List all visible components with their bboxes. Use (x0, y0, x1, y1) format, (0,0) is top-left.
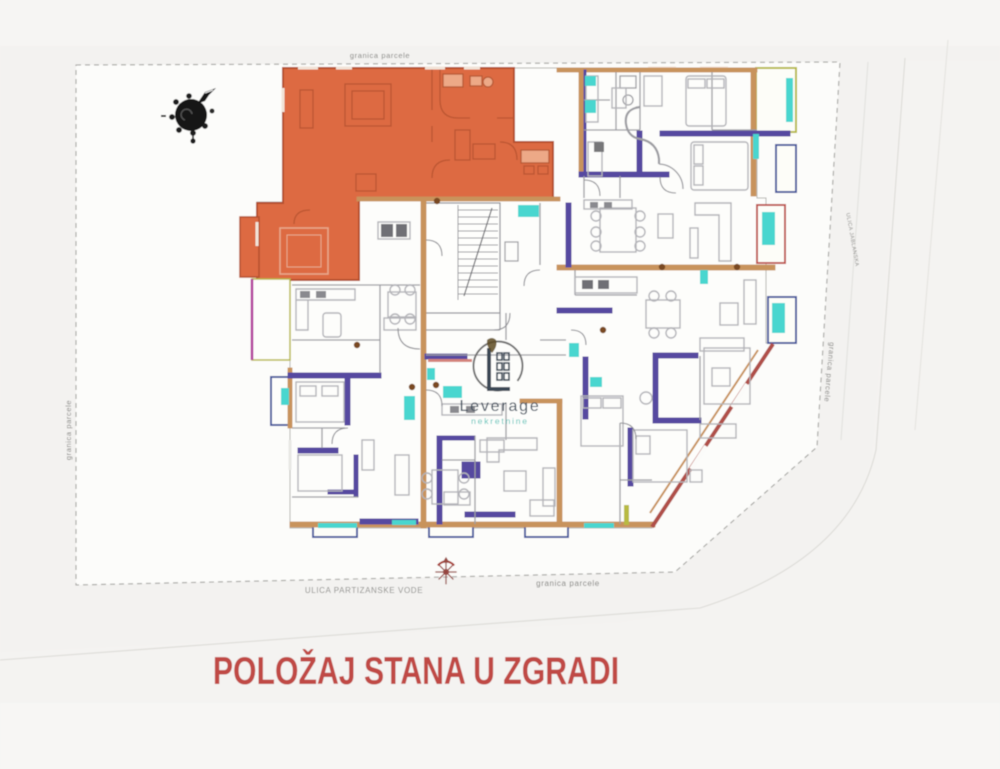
svg-text:granica parcele: granica parcele (350, 51, 410, 60)
svg-text:granica parcele: granica parcele (64, 400, 73, 460)
svg-text:ULICA PARTIZANSKE VODE: ULICA PARTIZANSKE VODE (305, 586, 423, 595)
svg-text:granica parcele: granica parcele (536, 579, 600, 588)
svg-text:nekretnine: nekretnine (471, 416, 529, 426)
svg-text:Leverage: Leverage (459, 398, 540, 415)
svg-text:POLOŽAJ STANA U ZGRADI: POLOŽAJ STANA U ZGRADI (213, 648, 619, 693)
